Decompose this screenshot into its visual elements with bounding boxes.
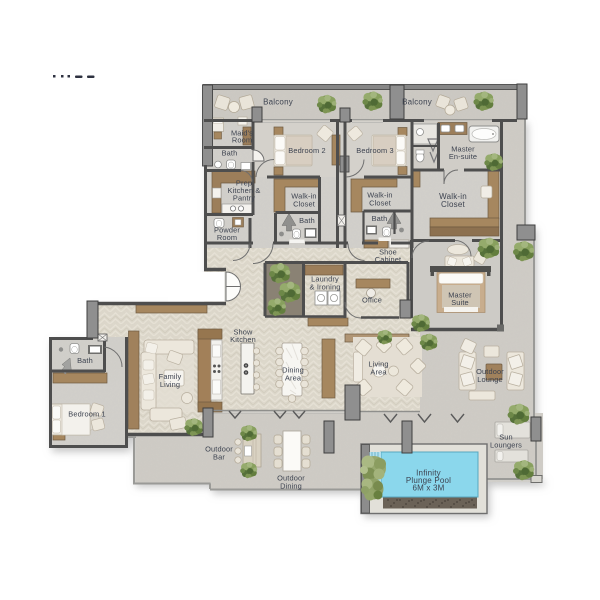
svg-text:Area: Area [370, 368, 387, 377]
svg-text:Bedroom 2: Bedroom 2 [288, 146, 326, 155]
svg-text:Bedroom 1: Bedroom 1 [68, 410, 106, 419]
svg-text:& Ironing: & Ironing [310, 283, 341, 292]
svg-text:6M x 3M: 6M x 3M [412, 484, 444, 493]
svg-text:Suite: Suite [451, 298, 469, 307]
svg-text:Bar: Bar [213, 453, 225, 462]
svg-text:Lounge: Lounge [477, 375, 503, 384]
svg-text:Bath: Bath [77, 356, 93, 365]
svg-text:Cabinet: Cabinet [375, 255, 402, 264]
svg-text:Room: Room [217, 233, 237, 242]
svg-text:Bath: Bath [299, 216, 315, 225]
svg-text:Dining: Dining [280, 482, 302, 491]
svg-text:Bedroom 3: Bedroom 3 [356, 146, 394, 155]
svg-text:Balcony: Balcony [263, 98, 293, 107]
svg-text:Balcony: Balcony [402, 98, 432, 107]
svg-text:En-suite: En-suite [449, 152, 477, 161]
svg-text:Living: Living [160, 380, 180, 389]
svg-text:Pantry: Pantry [233, 194, 255, 203]
svg-text:Bath: Bath [372, 214, 388, 223]
svg-text:Loungers: Loungers [490, 441, 522, 450]
svg-text:Room: Room [232, 136, 252, 145]
svg-text:Kitchen: Kitchen [230, 335, 256, 344]
svg-text:Closet: Closet [369, 199, 391, 208]
svg-text:Area: Area [285, 374, 302, 383]
svg-text:Closet: Closet [293, 200, 315, 209]
svg-text:Bath: Bath [222, 149, 238, 158]
svg-text:Office: Office [362, 296, 382, 305]
svg-text:Closet: Closet [441, 200, 465, 209]
